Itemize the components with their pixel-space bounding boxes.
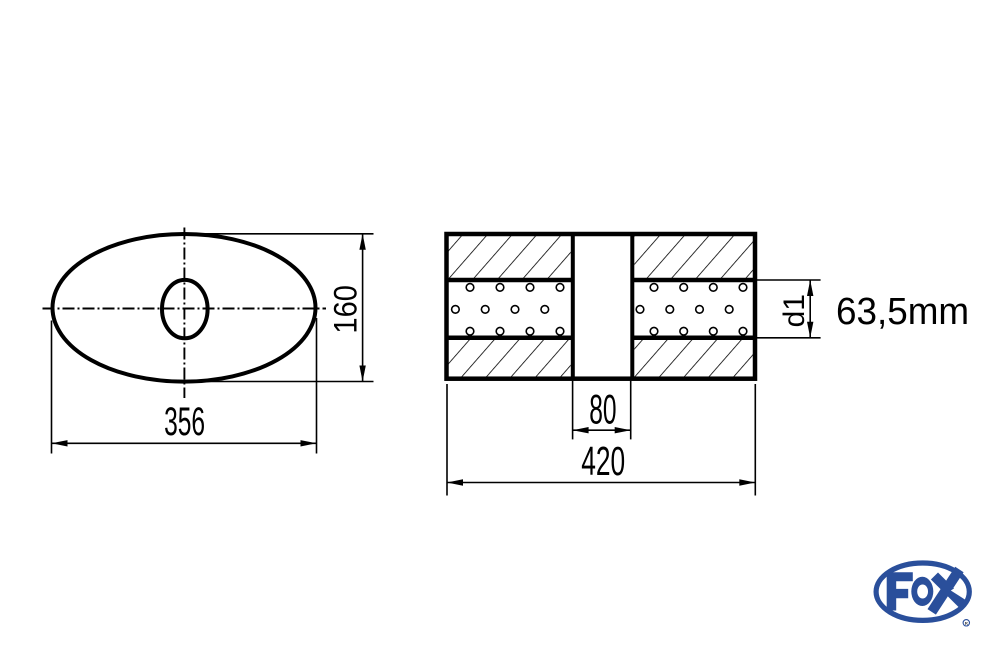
- svg-text:356: 356: [164, 400, 205, 445]
- svg-text:63,5mm: 63,5mm: [836, 289, 969, 332]
- svg-text:160: 160: [328, 285, 364, 334]
- svg-text:80: 80: [589, 387, 616, 433]
- svg-text:d1: d1: [778, 294, 811, 327]
- svg-text:420: 420: [581, 439, 625, 484]
